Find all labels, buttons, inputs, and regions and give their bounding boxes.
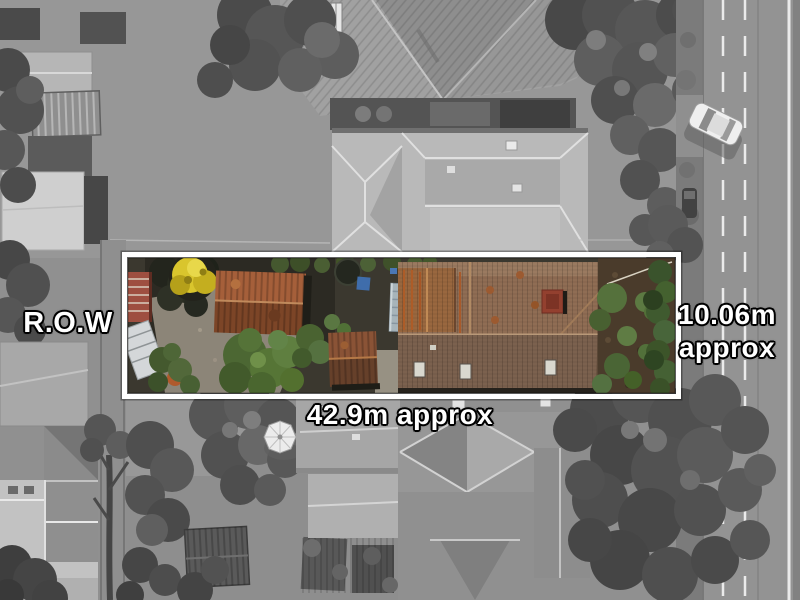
ac-unit bbox=[414, 362, 425, 377]
ac-unit bbox=[545, 360, 556, 375]
blue-tarp bbox=[356, 276, 370, 290]
aerial-photo: R.O.W 10.06m approx 42.9m approx bbox=[0, 0, 800, 600]
width-value: 10.06m bbox=[662, 298, 792, 331]
rusty-shed bbox=[214, 270, 312, 335]
right-of-way-label: R.O.W bbox=[20, 307, 116, 340]
trampoline bbox=[335, 259, 361, 285]
chimney bbox=[542, 290, 567, 314]
right-of-way-text: R.O.W bbox=[23, 307, 113, 339]
ac-unit bbox=[460, 364, 471, 379]
rusty-shed-2 bbox=[328, 331, 380, 391]
tree-trunk bbox=[109, 455, 110, 600]
depth-dimension-label: 42.9m approx bbox=[295, 399, 505, 431]
depth-value: 42.9m approx bbox=[307, 399, 494, 430]
chimney bbox=[506, 141, 517, 150]
patio-umbrella bbox=[264, 421, 296, 453]
property-interior bbox=[120, 252, 678, 400]
brick-building bbox=[128, 272, 152, 322]
top-neighbour-house bbox=[332, 128, 588, 252]
width-dimension-label: 10.06m approx bbox=[662, 298, 792, 364]
garden-beds bbox=[301, 537, 398, 593]
width-approx: approx bbox=[662, 331, 792, 364]
main-house-roof bbox=[398, 262, 606, 393]
left-gable-roof bbox=[398, 268, 455, 332]
chimney bbox=[512, 184, 522, 192]
top-neighbour-carport bbox=[330, 98, 576, 130]
yellow-bush bbox=[169, 253, 217, 301]
